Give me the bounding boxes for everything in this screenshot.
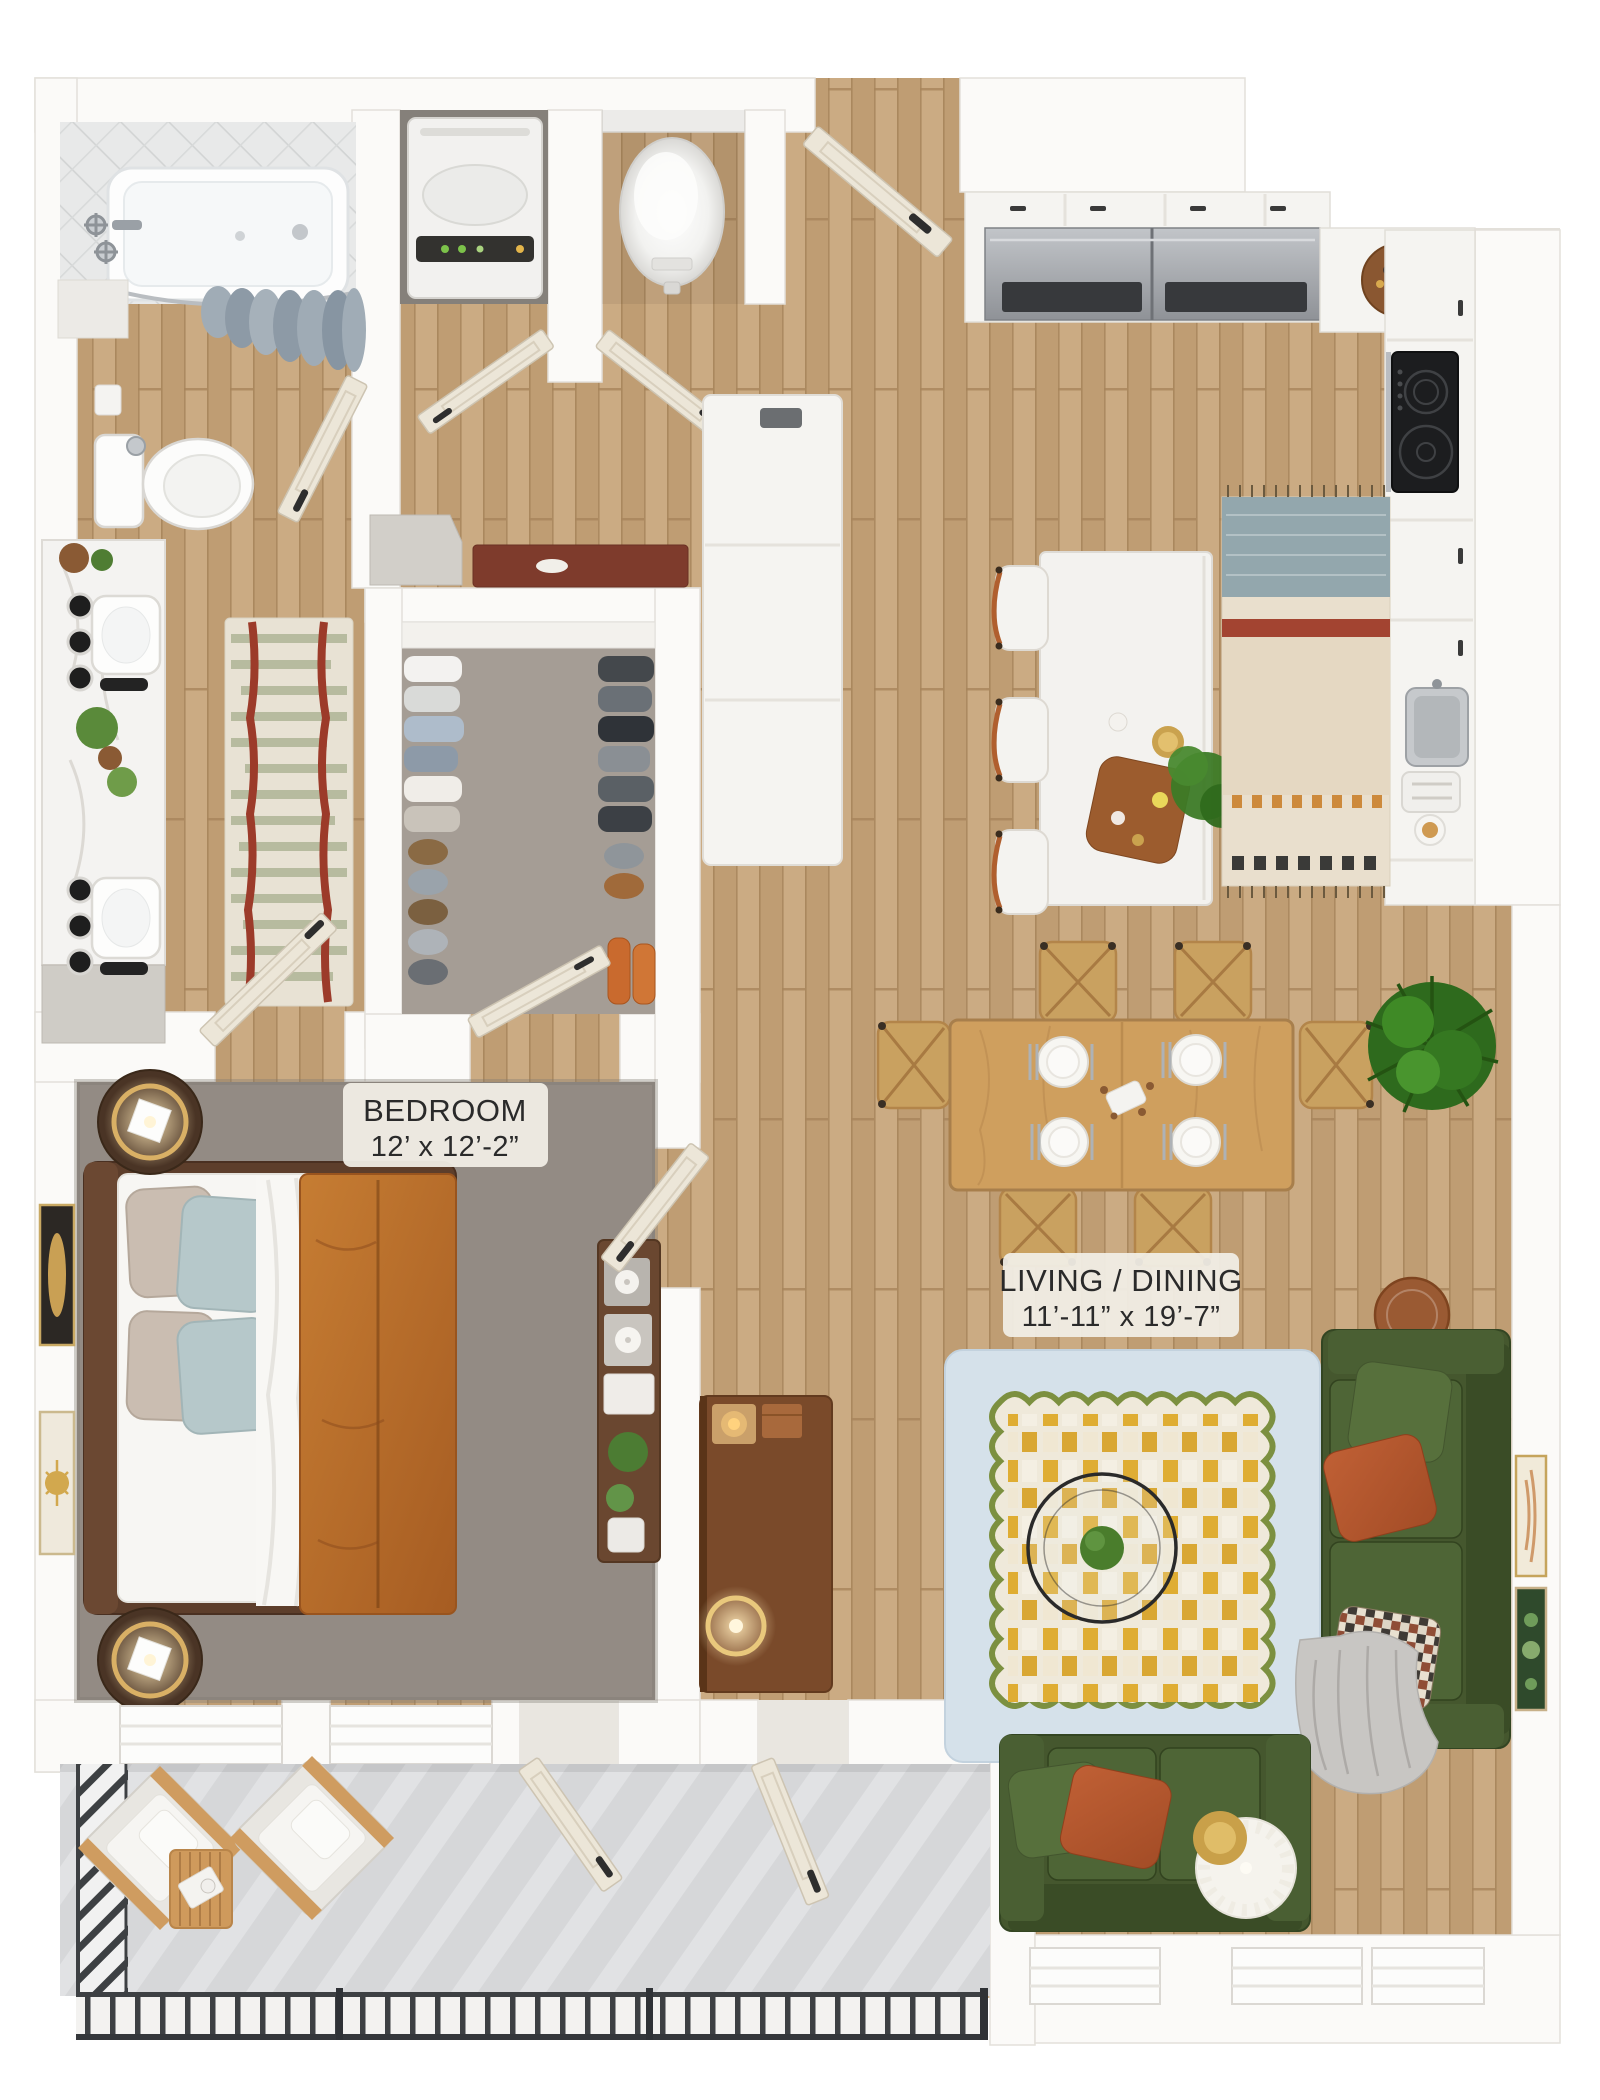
cooktop [1386, 352, 1458, 492]
wall-right-lower [1512, 905, 1560, 1935]
media-console [696, 1396, 832, 1692]
vent-slot-icon [1002, 282, 1142, 312]
entry-console [473, 545, 688, 587]
coffee-table [1028, 1474, 1176, 1622]
cup [1109, 713, 1127, 731]
vanity-plant-icon [76, 707, 118, 749]
bedroom-name: BEDROOM [363, 1093, 527, 1128]
wall-closet-top [365, 588, 700, 622]
laundry-closet [400, 110, 548, 304]
vanity-cabinet [42, 965, 165, 1043]
sink-faucet-icon [1432, 679, 1442, 689]
dining-chair [1175, 942, 1251, 1022]
dining-chair [878, 1022, 950, 1108]
living-windows [1030, 1948, 1484, 2004]
window [1372, 1948, 1484, 2004]
faucet-1-icon [100, 678, 148, 691]
wall-heater-right [745, 110, 785, 304]
wall-bedroom-bottom-a [35, 1700, 120, 1772]
vanity-dish [59, 543, 89, 573]
bedroom-label: BEDROOM 12’ x 12’-2” [343, 1083, 548, 1167]
tub-drain-icon [292, 224, 308, 240]
dresser-plant-icon [608, 1432, 648, 1472]
wall-closet-stub [548, 110, 602, 382]
island-stools [994, 566, 1048, 914]
window [1030, 1948, 1160, 2004]
living-label: LIVING / DINING 11’-11” x 19’-7” [999, 1253, 1242, 1337]
closet-shelf [402, 622, 655, 648]
bedroom-dimensions: 12’ x 12’-2” [371, 1131, 519, 1163]
vanity [42, 540, 165, 1043]
living-name: LIVING / DINING [999, 1263, 1242, 1298]
wall-bedroom-bottom-d [618, 1700, 700, 1772]
dining-chair [1300, 1022, 1374, 1108]
wall-living-balcony-a [700, 1700, 758, 1772]
island-stool [994, 698, 1048, 782]
kitchen-runner-rug [1222, 485, 1390, 898]
wall-top-right [960, 78, 1245, 192]
walk-in-closet [402, 622, 655, 1038]
bedroom: BEDROOM 12’ x 12’-2” [40, 1070, 709, 1764]
sideboard [703, 395, 842, 865]
nightstand-top [98, 1070, 202, 1174]
wall-bedroom-bottom-c [492, 1700, 520, 1772]
sofa [1296, 1330, 1510, 1794]
nightstand-bottom [98, 1608, 202, 1712]
vent-slot-icon [1165, 282, 1307, 312]
island-stool [994, 830, 1048, 914]
island-stool [994, 566, 1048, 650]
half-wall [58, 280, 128, 338]
floor-plan-image: BEDROOM 12’ x 12’-2” [0, 0, 1600, 2100]
bathtub [108, 168, 348, 300]
floor-plan-svg: BEDROOM 12’ x 12’-2” [0, 0, 1600, 2100]
dining-table [950, 1020, 1293, 1190]
kitchen-sink [1406, 679, 1468, 766]
bed [84, 1162, 456, 1614]
wall-right-upper [1475, 230, 1560, 905]
dining-chair [1040, 942, 1116, 1022]
toilet-paper-holder-icon [95, 385, 121, 415]
balcony [60, 1756, 990, 2040]
window [1232, 1948, 1362, 2004]
window [330, 1706, 492, 1764]
faucet-2-icon [100, 962, 148, 975]
wall-central-upper [655, 588, 700, 1148]
balcony-table [170, 1850, 232, 1928]
dresser [598, 1240, 660, 1562]
entry-bench [370, 515, 462, 585]
water-heater-closet [602, 110, 745, 304]
coffee-cup [201, 1879, 215, 1893]
window [120, 1706, 282, 1764]
living-dimensions: 11’-11” x 19’-7” [1022, 1301, 1221, 1333]
console-decor [536, 559, 568, 573]
wall-bedroom-bottom-b [282, 1700, 330, 1772]
wall-closet-left [365, 588, 402, 1048]
wall-closet-bottom-a [365, 1014, 470, 1082]
